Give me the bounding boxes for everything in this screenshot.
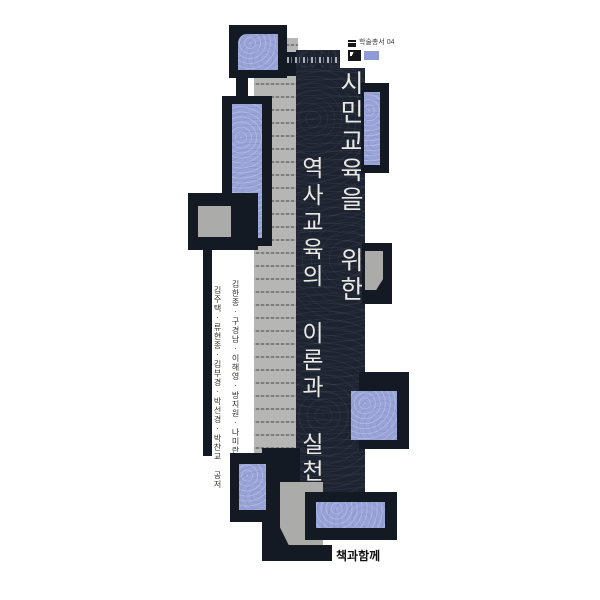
authors-line1: 김한종·구경남·이해영·방지원·나미란 — [230, 280, 241, 430]
shape-bottom-bar — [262, 545, 332, 561]
publisher-mark-chip — [364, 51, 379, 60]
shape-bottomright-blue — [316, 502, 385, 528]
authors-line2: 김주택·류현종·김부경·박선경·박찬교 공저 — [212, 286, 223, 451]
series-books-icon — [348, 40, 356, 47]
series-label: 학술총서 04 — [359, 39, 395, 47]
shape-topright-blue — [364, 92, 380, 165]
shape-topleft-blue — [238, 34, 278, 70]
series-mark: 학술총서 04 — [348, 39, 400, 65]
shape-connector — [236, 77, 248, 98]
publisher-logo: 책과함께 — [336, 547, 396, 563]
band-tagline-microtext — [287, 57, 337, 63]
title-line2: 역사교육의 이론과 실천 — [294, 156, 328, 456]
shape-lowright-blue — [351, 391, 397, 440]
shape-bottomleft-blue — [239, 464, 266, 510]
book-cover: 시민교육을 위한 역사교육의 이론과 실천 김한종·구경남·이해영·방지원·나미… — [0, 0, 600, 600]
publisher-mark-icon — [348, 50, 361, 61]
shape-thin-vertical-line — [203, 247, 212, 456]
shape-midleft-gray — [198, 206, 231, 237]
